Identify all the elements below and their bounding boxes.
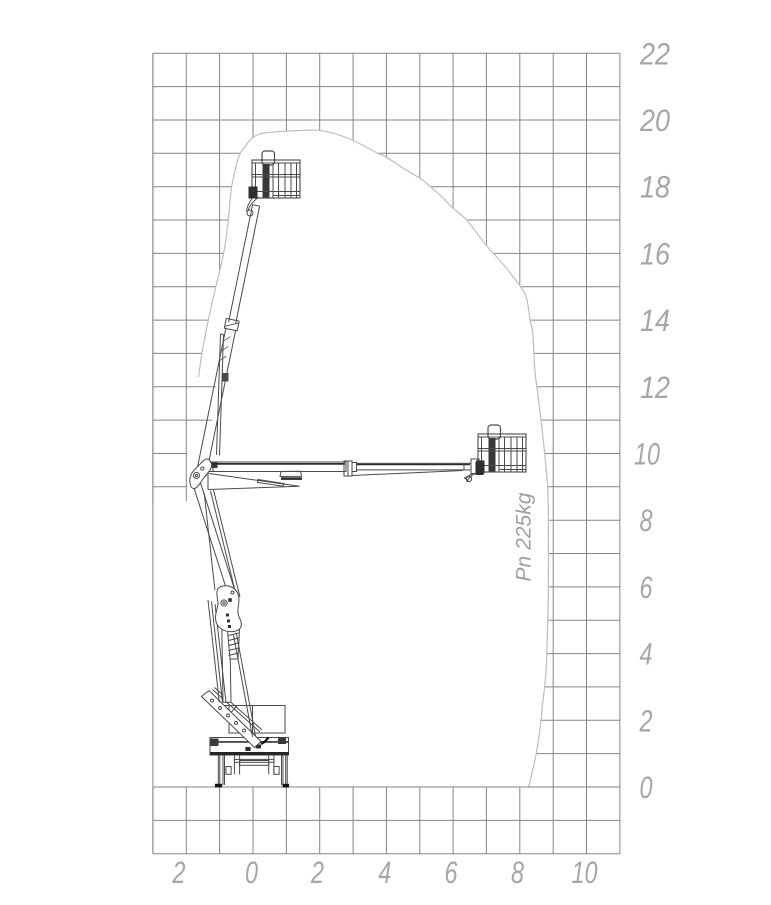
svg-text:Pn 225kg: Pn 225kg	[513, 492, 536, 581]
svg-text:2: 2	[310, 855, 324, 890]
svg-text:6: 6	[445, 855, 459, 890]
svg-text:4: 4	[640, 637, 653, 672]
svg-text:6: 6	[640, 570, 654, 605]
svg-text:4: 4	[378, 855, 391, 890]
svg-text:12: 12	[640, 370, 670, 405]
svg-text:8: 8	[511, 855, 525, 890]
svg-text:0: 0	[640, 770, 653, 805]
svg-text:8: 8	[640, 503, 654, 538]
svg-text:2: 2	[172, 855, 186, 890]
svg-text:16: 16	[640, 236, 671, 271]
svg-text:20: 20	[639, 103, 670, 138]
svg-text:0: 0	[245, 855, 258, 890]
svg-text:14: 14	[640, 303, 670, 338]
svg-text:18: 18	[640, 170, 671, 205]
svg-text:10: 10	[572, 855, 598, 890]
svg-text:22: 22	[639, 36, 670, 71]
svg-text:10: 10	[634, 437, 660, 472]
svg-text:2: 2	[639, 703, 653, 738]
